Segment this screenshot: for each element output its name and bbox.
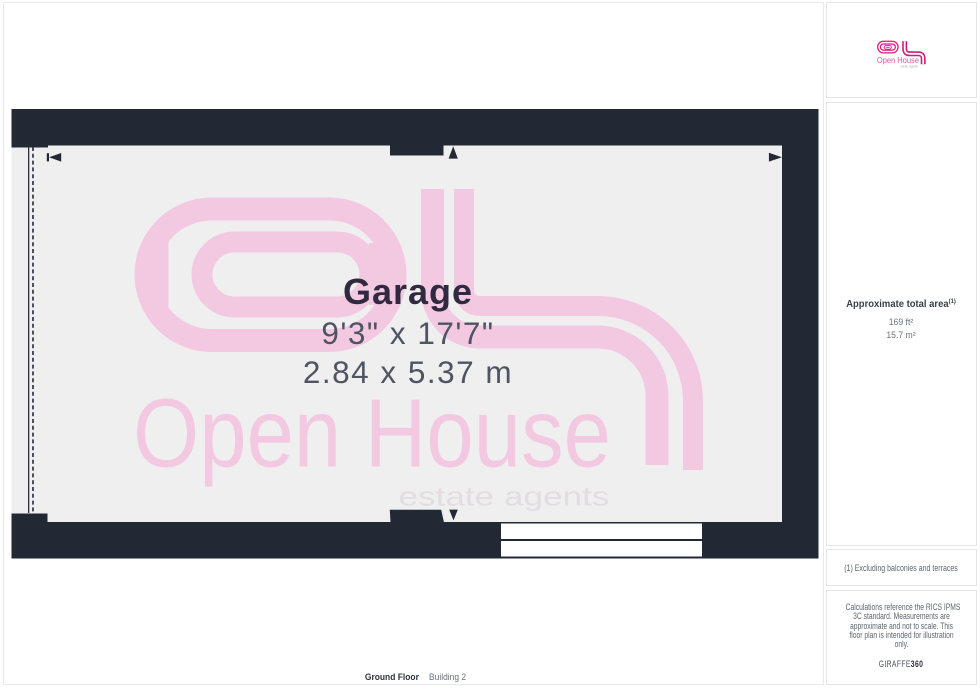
svg-text:estate agents: estate agents <box>900 64 918 68</box>
svg-text:estate agents: estate agents <box>399 481 610 511</box>
svg-text:Open House: Open House <box>133 379 611 488</box>
